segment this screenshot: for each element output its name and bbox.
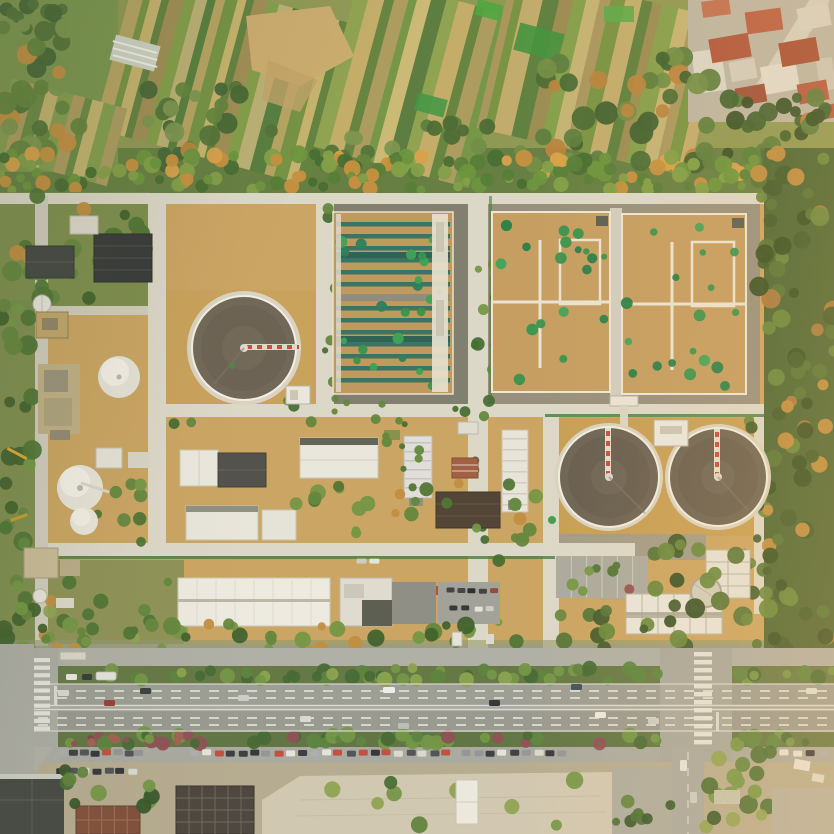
car	[489, 700, 500, 706]
parked-car-row	[779, 749, 788, 755]
parked-car-row	[545, 750, 554, 756]
clarifier-bridge	[244, 344, 301, 350]
crosswalk	[34, 711, 50, 715]
aerial-photo-canvas	[0, 0, 834, 834]
car	[82, 674, 92, 680]
brown-roof-building	[436, 492, 500, 528]
parked-car-row	[250, 750, 259, 756]
parked-car-row	[475, 750, 484, 756]
crosswalk	[694, 732, 712, 736]
parked-car-row	[371, 750, 380, 756]
car	[104, 700, 115, 706]
crosswalk	[34, 681, 50, 685]
car	[680, 760, 687, 771]
parked-car-row	[535, 750, 544, 756]
parked-car-row	[286, 750, 295, 756]
parked-car-row	[382, 749, 391, 755]
parked-car-row	[359, 750, 368, 756]
parked-car-row	[819, 750, 828, 756]
parked-car-row	[91, 751, 100, 757]
parked-car-row	[557, 751, 566, 757]
crosswalk	[694, 668, 712, 672]
parked-car-row	[275, 751, 284, 757]
car	[66, 674, 77, 680]
bus-shelter	[60, 652, 86, 660]
crosswalk	[694, 692, 712, 696]
parked-car-row	[134, 750, 143, 756]
crosswalk	[694, 724, 712, 728]
gate-house	[452, 632, 462, 646]
parked-car-row	[114, 749, 123, 755]
car	[648, 718, 659, 724]
crosswalk	[694, 708, 712, 712]
plant-road	[0, 193, 790, 204]
parked-car-row	[215, 751, 224, 757]
brick-structure	[452, 458, 478, 478]
parked-car-row	[441, 750, 450, 756]
crosswalk	[34, 696, 50, 700]
crosswalk	[694, 716, 712, 720]
parked-car-row	[128, 769, 137, 775]
crosswalk	[694, 684, 712, 688]
parked-car-row	[431, 750, 440, 756]
parked-car-row	[510, 750, 519, 756]
parked-car-row	[105, 768, 114, 774]
parked-car-row	[793, 751, 802, 757]
parked-car-row	[407, 750, 416, 756]
crosswalk	[694, 740, 712, 744]
parked-car-row	[80, 750, 89, 756]
parked-car-row	[202, 749, 211, 755]
aerial-photo	[0, 0, 834, 834]
parked-car-row	[115, 768, 124, 774]
car	[595, 712, 606, 718]
car	[300, 716, 311, 722]
parked-car-row	[333, 750, 342, 756]
parked-car-row	[497, 750, 506, 756]
plant-road	[35, 543, 635, 556]
parked-car-row	[93, 769, 102, 775]
crosswalk	[34, 673, 50, 677]
parked-car-row	[417, 751, 426, 757]
aeration-basin	[333, 212, 453, 394]
crosswalk	[34, 666, 50, 670]
parked-car-row	[322, 749, 331, 755]
parked-car-row	[347, 751, 356, 757]
crosswalk	[34, 719, 50, 723]
side-street	[0, 644, 34, 776]
parked-car-row	[102, 749, 111, 755]
crosswalk	[694, 660, 712, 664]
parked-car-row	[239, 751, 248, 757]
car	[58, 690, 69, 696]
parked-car-row	[125, 751, 134, 757]
parked-car-row	[69, 750, 78, 756]
parked-car-row	[226, 751, 235, 757]
car	[383, 687, 395, 693]
car	[140, 688, 151, 694]
crosswalk	[694, 676, 712, 680]
parked-car-row	[522, 750, 531, 756]
parked-car-row	[394, 751, 403, 757]
car	[690, 792, 697, 803]
parked-car-row	[462, 750, 471, 756]
parked-car-row	[298, 750, 307, 756]
car	[806, 688, 817, 694]
crosswalk	[34, 688, 50, 692]
car	[571, 684, 582, 690]
parked-car-row	[261, 751, 270, 757]
crosswalk	[34, 658, 50, 662]
crosswalk	[34, 704, 50, 708]
parked-car-row	[806, 750, 815, 756]
car	[398, 723, 409, 729]
parked-car-row	[310, 750, 319, 756]
crosswalk	[694, 652, 712, 656]
parked-car-row	[58, 749, 67, 755]
crosswalk	[34, 726, 50, 730]
parked-car-row	[486, 751, 495, 757]
car	[238, 695, 249, 701]
crosswalk	[694, 700, 712, 704]
parked-car-row	[190, 750, 199, 756]
bus	[96, 672, 116, 680]
